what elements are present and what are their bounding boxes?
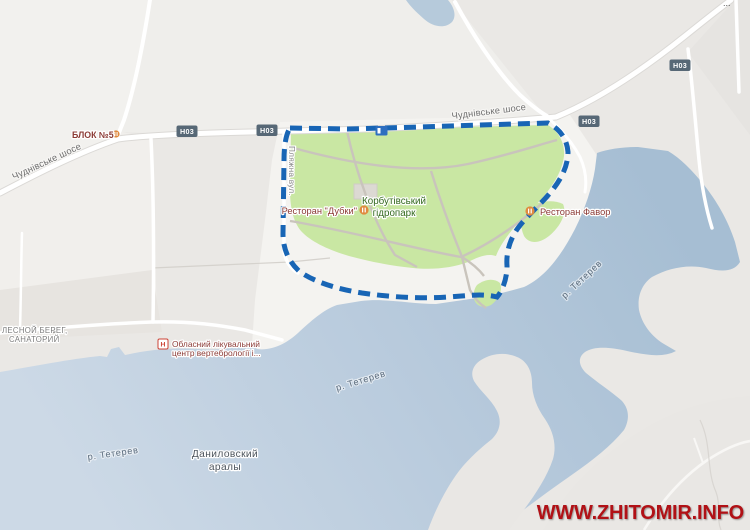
area-label-danylivski-line2: аралы <box>209 462 241 473</box>
map-screenshot: Н Н03 Н03 Н03 Н03 Чуднівське шосе Чуднів… <box>0 0 750 530</box>
poi-label-medcenter-line2[interactable]: центр вертебрології і... <box>172 348 261 358</box>
poi-label-restaurant-dubki[interactable]: Ресторан "Дубки" <box>282 206 357 216</box>
h03-shield-4-label: Н03 <box>673 61 687 70</box>
poi-label-sanatorium-line1: ЛЕСНОЙ БЕРЕГ, <box>2 326 67 335</box>
h03-shield-1-label: Н03 <box>180 127 194 136</box>
hospital-icon[interactable]: Н <box>158 339 168 349</box>
h03-shield-3: Н03 <box>579 116 600 128</box>
area-label-danylivski-line1: Даниловский <box>192 449 258 460</box>
restaurant-icon-favor[interactable] <box>525 206 534 215</box>
h03-shield-2: Н03 <box>257 125 278 137</box>
street-label-plyazhna: Пляжна вул. <box>287 146 297 196</box>
truncated-road-label: ... <box>723 0 731 8</box>
hospital-icon-letter: Н <box>161 342 166 349</box>
h03-shield-1: Н03 <box>177 126 198 138</box>
h03-shield-2-label: Н03 <box>260 126 274 135</box>
h03-shield-4: Н03 <box>670 60 691 72</box>
park-label-line2[interactable]: гідропарк <box>373 208 417 219</box>
park-label-line1[interactable]: Корбутівський <box>362 196 426 207</box>
bus-stop-icon[interactable] <box>376 126 388 136</box>
poi-label-blok5[interactable]: БЛОК №5 <box>72 130 114 140</box>
poi-label-sanatorium-line2: САНАТОРИЙ <box>9 335 59 344</box>
watermark-logo: WWW.ZHITOMIR.INFO <box>537 502 744 525</box>
h03-shield-3-label: Н03 <box>582 117 596 126</box>
map-canvas[interactable]: Н Н03 Н03 Н03 Н03 Чуднівське шосе Чуднів… <box>0 0 750 530</box>
poi-label-restaurant-favor[interactable]: Ресторан Фавор <box>540 207 610 217</box>
